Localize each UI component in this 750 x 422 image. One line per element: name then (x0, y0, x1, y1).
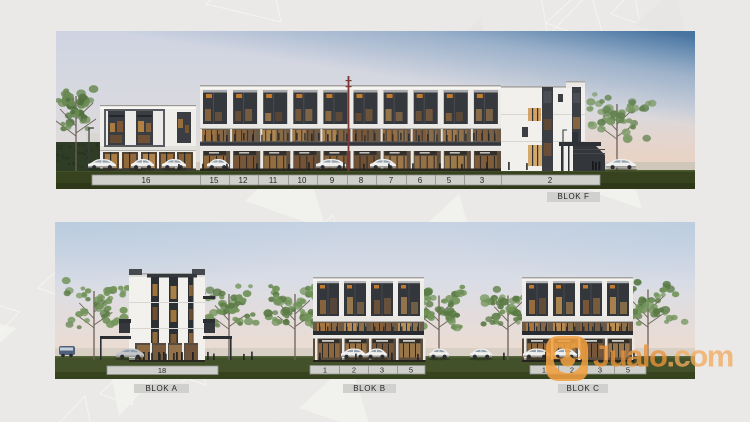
svg-text:11: 11 (269, 176, 278, 185)
svg-text:Jualo.com: Jualo.com (593, 339, 733, 374)
svg-text:2: 2 (352, 366, 356, 375)
svg-text:18: 18 (158, 366, 166, 375)
svg-text:10: 10 (298, 176, 307, 185)
svg-text:16: 16 (142, 176, 151, 185)
svg-text:3: 3 (380, 366, 384, 375)
svg-text:12: 12 (239, 176, 248, 185)
svg-text:6: 6 (418, 176, 423, 185)
svg-text:8: 8 (359, 176, 364, 185)
svg-text:1: 1 (323, 366, 327, 375)
svg-text:5: 5 (409, 366, 413, 375)
svg-text:15: 15 (210, 176, 219, 185)
svg-text:3: 3 (480, 176, 485, 185)
svg-text:5: 5 (447, 176, 452, 185)
svg-text:7: 7 (389, 176, 394, 185)
svg-text:2: 2 (548, 176, 553, 185)
svg-text:9: 9 (330, 176, 335, 185)
